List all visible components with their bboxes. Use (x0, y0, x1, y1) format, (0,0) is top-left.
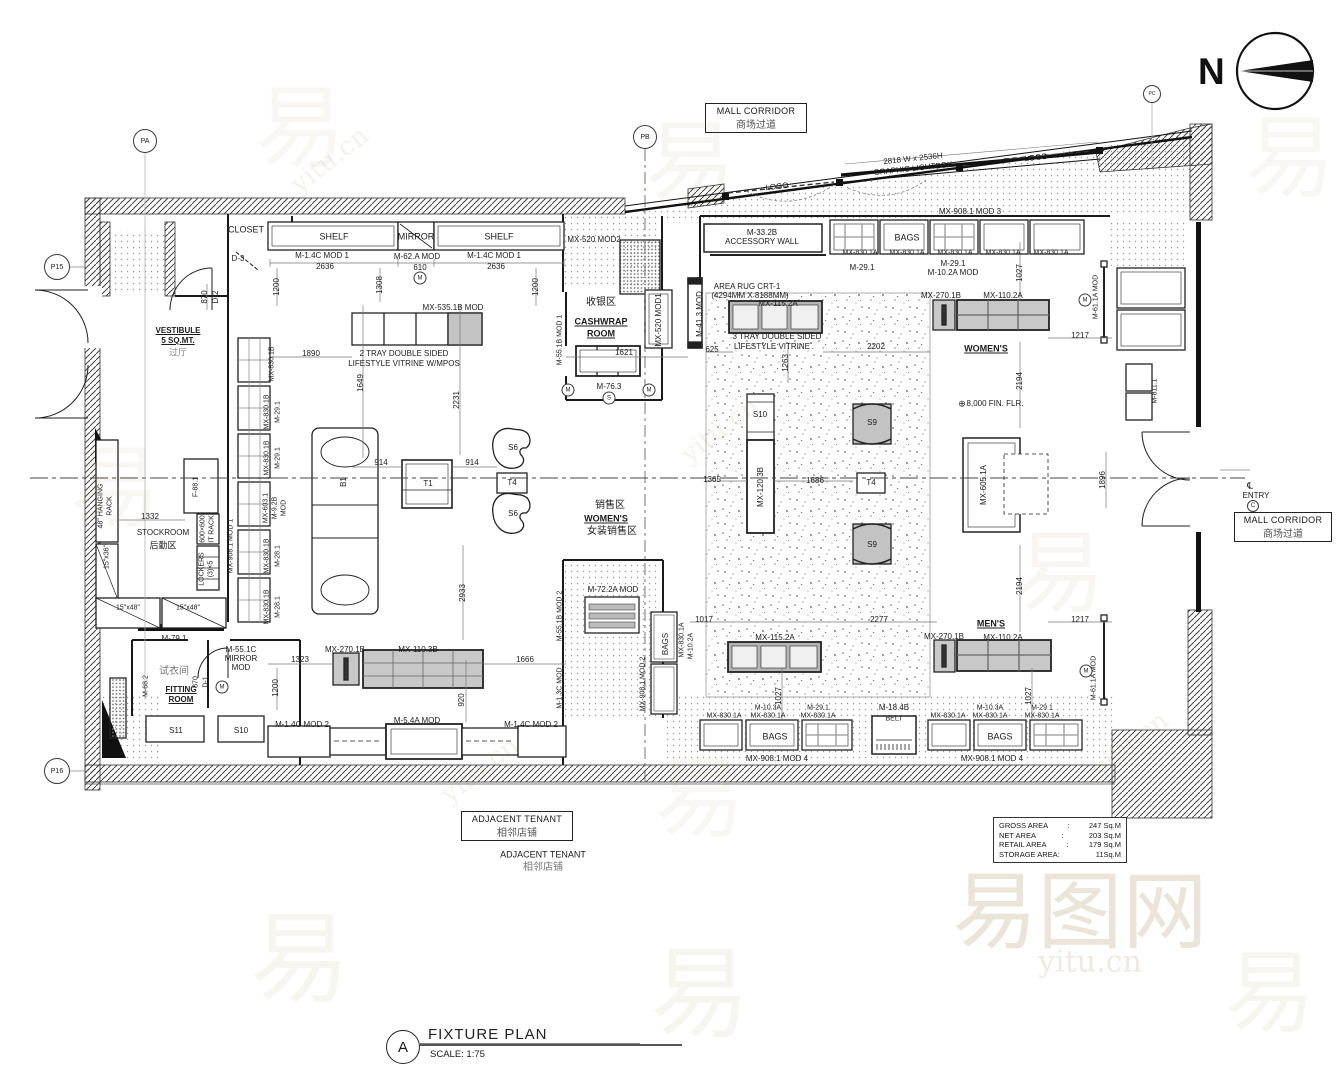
table-row: STORAGE AREA:11Sq.M (999, 850, 1121, 860)
area-rug (706, 293, 930, 697)
mall-corridor-zh: 商场过道 (710, 116, 802, 131)
mall-corridor-en: MALL CORRIDOR (1239, 515, 1327, 525)
table-row: NET AREA:203 Sq.M (999, 831, 1121, 841)
table-row: GROSS AREA:247 Sq.M (999, 821, 1121, 831)
mall-corridor-label-right: MALL CORRIDOR 商场过道 (1234, 512, 1332, 542)
plan-linework (0, 0, 1343, 1069)
scale-note: SCALE: 1:75 (430, 1049, 485, 1060)
adjacent-tenant-en: ADJACENT TENANT (466, 814, 568, 824)
mall-corridor-en: MALL CORRIDOR (710, 106, 802, 116)
detail-bubble: A (386, 1030, 420, 1064)
north-letter: N (1198, 51, 1225, 93)
page-title: FIXTURE PLAN (428, 1026, 548, 1043)
adjacent-tenant-label: ADJACENT TENANT 相邻店铺 (461, 811, 573, 841)
table-row: RETAIL AREA:179 Sq.M (999, 840, 1121, 850)
title-divider (420, 1044, 682, 1046)
area-summary-table: GROSS AREA:247 Sq.M NET AREA:203 Sq.M RE… (993, 817, 1127, 863)
title-block: A FIXTURE PLAN SCALE: 1:75 (384, 1026, 704, 1066)
mall-corridor-zh: 商场过道 (1239, 525, 1327, 540)
mall-corridor-label-top: MALL CORRIDOR 商场过道 (705, 103, 807, 133)
adjacent-tenant-zh: 相邻店铺 (466, 824, 568, 839)
north-indicator: N (1170, 25, 1340, 120)
fixture-plan-canvas: 2818 W x 2536HGRAPHIC LIGHTBOXLOGOLOGOMX… (0, 0, 1343, 1069)
